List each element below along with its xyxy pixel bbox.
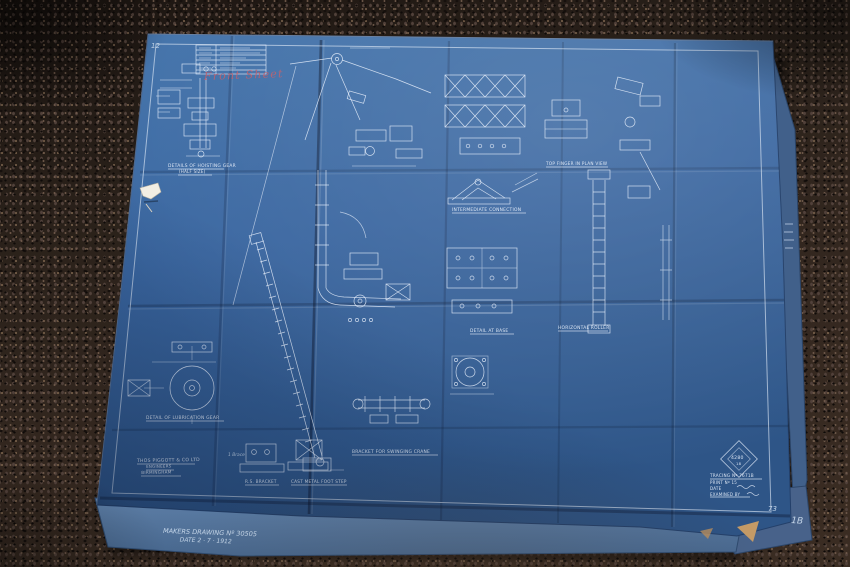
under-sheet-number: 1B — [791, 516, 804, 527]
main-blueprint-sheet: 12 73 Front Sheet DETAILS OF HOISTING GE… — [97, 34, 791, 536]
blueprint-scene: 1B MAKERS DRAWING Nº 30505 DATE 2 · 7 · … — [0, 0, 850, 567]
photo-of-blueprint: 1B MAKERS DRAWING Nº 30505 DATE 2 · 7 · … — [0, 0, 850, 567]
sheet-highlight — [97, 34, 791, 536]
